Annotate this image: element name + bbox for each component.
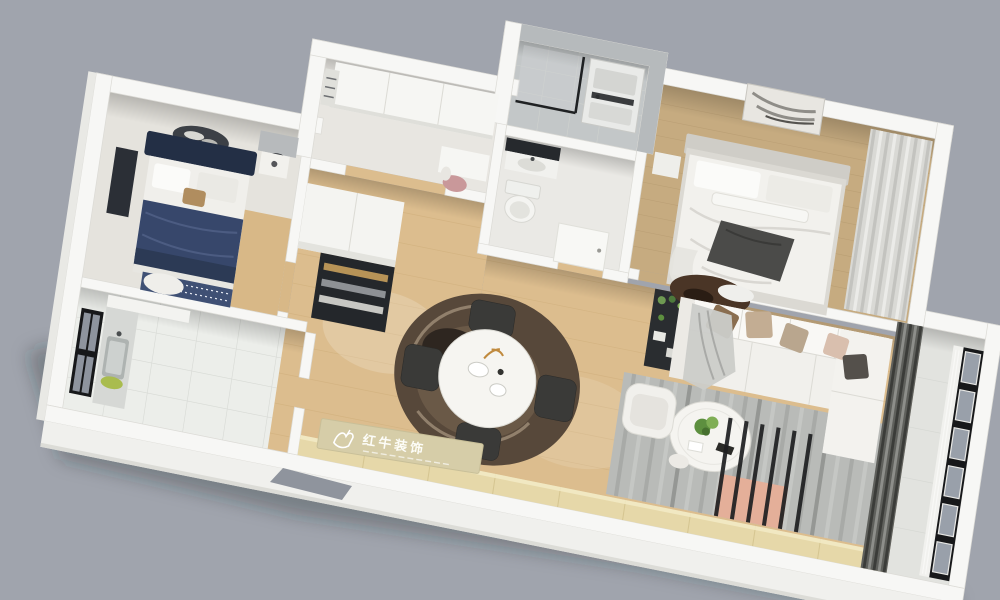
sofa-pillow	[745, 311, 773, 338]
floor-plan-render: 红牛装饰	[0, 0, 1000, 600]
dining-chair	[400, 343, 444, 393]
sofa-pillow	[842, 354, 869, 380]
dining-chair	[533, 374, 577, 424]
floor-plan-canvas: 红牛装饰	[0, 0, 1000, 600]
